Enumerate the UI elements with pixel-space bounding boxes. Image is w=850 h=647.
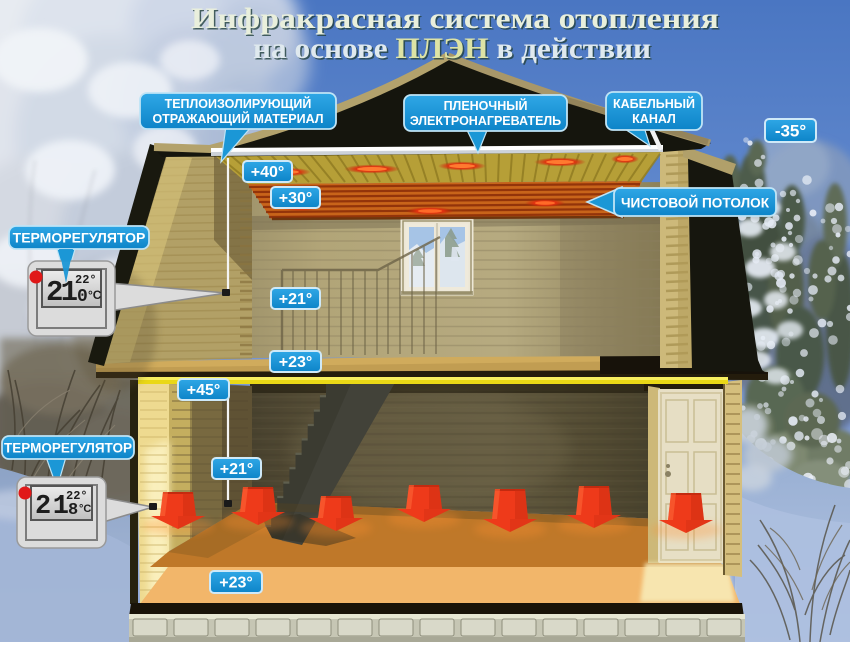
svg-text:ОТРАЖАЮЩИЙ МАТЕРИАЛ: ОТРАЖАЮЩИЙ МАТЕРИАЛ xyxy=(152,111,323,126)
svg-text:на основе ПЛЭН в действии: на основе ПЛЭН в действии xyxy=(253,32,651,65)
svg-text:+40°: +40° xyxy=(251,164,285,181)
svg-text:+30°: +30° xyxy=(279,190,313,207)
svg-text:22°: 22° xyxy=(75,273,97,287)
svg-text:21: 21 xyxy=(46,276,78,309)
svg-text:ТЕПЛОИЗОЛИРУЮЩИЙ: ТЕПЛОИЗОЛИРУЮЩИЙ xyxy=(165,96,312,111)
svg-text:°C: °C xyxy=(79,503,91,515)
svg-text:0: 0 xyxy=(77,287,88,307)
svg-text:КАНАЛ: КАНАЛ xyxy=(632,112,676,126)
svg-text:+21°: +21° xyxy=(279,291,313,308)
svg-text:-35°: -35° xyxy=(775,121,807,140)
svg-text:22°: 22° xyxy=(66,489,88,503)
svg-text:+23°: +23° xyxy=(279,354,313,371)
svg-text:ЭЛЕКТРОНАГРЕВАТЕЛЬ: ЭЛЕКТРОНАГРЕВАТЕЛЬ xyxy=(410,114,561,128)
svg-text:+23°: +23° xyxy=(219,575,253,592)
svg-text:ПЛЕНОЧНЫЙ: ПЛЕНОЧНЫЙ xyxy=(444,98,528,113)
svg-text:21: 21 xyxy=(35,492,69,522)
svg-text:+45°: +45° xyxy=(187,382,221,399)
svg-text:ТЕРМОРЕГУЛЯТОР: ТЕРМОРЕГУЛЯТОР xyxy=(13,230,146,246)
svg-text:ЧИСТОВОЙ ПОТОЛОК: ЧИСТОВОЙ ПОТОЛОК xyxy=(621,194,769,211)
svg-text:Инфракрасная система отопления: Инфракрасная система отопления xyxy=(191,2,719,35)
svg-text:+21°: +21° xyxy=(220,461,254,478)
svg-text:ТЕРМОРЕГУЛЯТОР: ТЕРМОРЕГУЛЯТОР xyxy=(4,440,132,455)
svg-text:КАБЕЛЬНЫЙ: КАБЕЛЬНЫЙ xyxy=(613,96,695,111)
svg-text:°C: °C xyxy=(88,288,102,302)
svg-text:8: 8 xyxy=(68,501,78,520)
